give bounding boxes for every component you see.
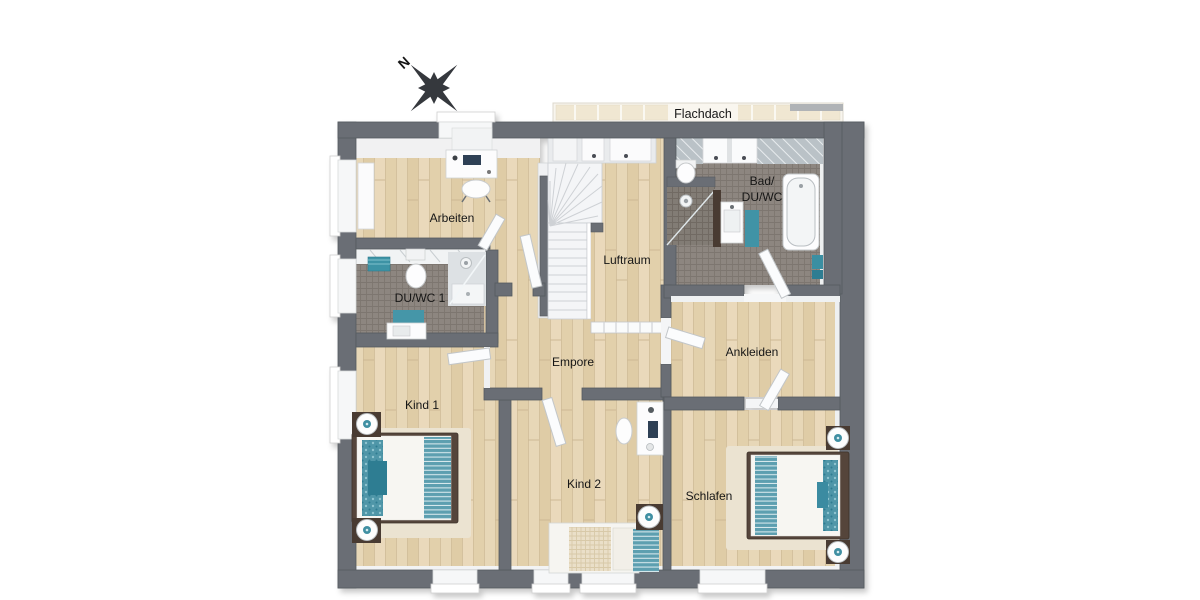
svg-text:Bad/: Bad/ <box>750 174 775 188</box>
svg-text:Luftraum: Luftraum <box>603 253 650 267</box>
svg-text:Ankleiden: Ankleiden <box>726 345 779 359</box>
svg-text:Arbeiten: Arbeiten <box>430 211 475 225</box>
svg-text:Flachdach: Flachdach <box>674 107 732 121</box>
svg-text:DU/WC: DU/WC <box>742 190 783 204</box>
svg-text:Kind 2: Kind 2 <box>567 477 601 491</box>
svg-text:Schlafen: Schlafen <box>686 489 733 503</box>
svg-text:Kind 1: Kind 1 <box>405 398 439 412</box>
svg-text:Empore: Empore <box>552 355 594 369</box>
svg-text:DU/WC 1: DU/WC 1 <box>395 291 446 305</box>
